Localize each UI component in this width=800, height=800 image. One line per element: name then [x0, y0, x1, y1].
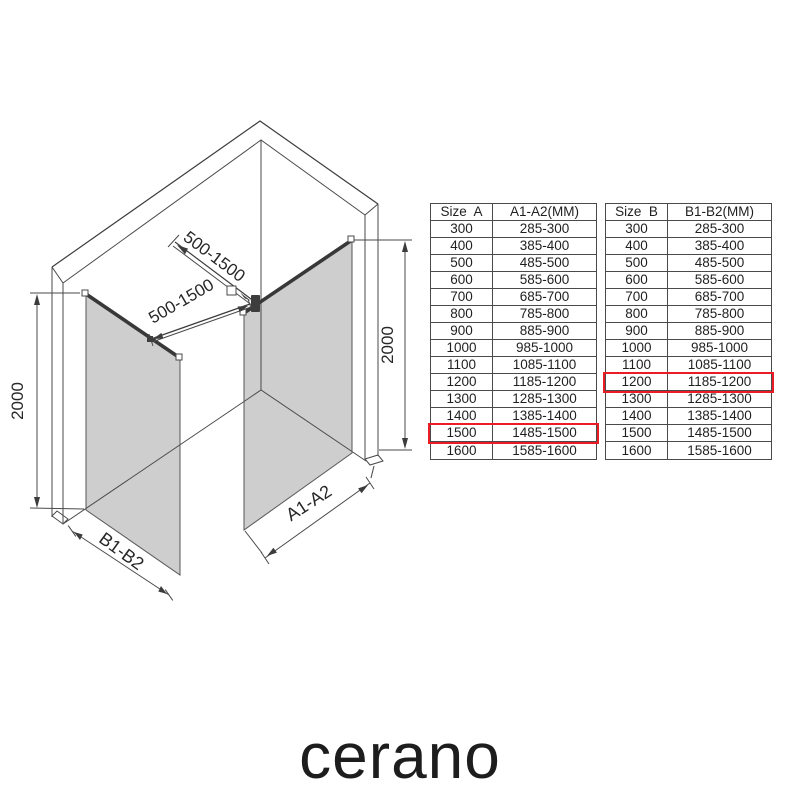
table-row: 700685-700: [606, 289, 771, 306]
table-cell: 985-1000: [493, 340, 596, 356]
dim-arrow: [34, 294, 40, 305]
size-table-b: Size BB1-B2(MM) 300285-300400385-4005004…: [605, 203, 772, 460]
table-cell: 485-500: [668, 255, 771, 271]
table-row: 800785-800: [606, 306, 771, 323]
table-row: 400385-400: [606, 238, 771, 255]
dim-ext-line: [371, 466, 374, 478]
table-cell: 800: [606, 306, 668, 322]
dim-arrow: [34, 497, 40, 508]
wall-right-end-cap: [365, 204, 378, 215]
table-cell: 600: [431, 272, 493, 288]
table-b-body: 300285-300400385-400500485-500600585-600…: [606, 221, 771, 459]
table-cell: 500: [431, 255, 493, 271]
table-cell: 1585-1600: [668, 442, 771, 459]
table-cell: 585-600: [493, 272, 596, 288]
table-row: 11001085-1100: [431, 357, 596, 374]
table-cell: 300: [606, 221, 668, 237]
table-row: 300285-300: [431, 221, 596, 238]
profile-cap-fitting: [82, 290, 88, 296]
table-cell: 1385-1400: [493, 408, 596, 424]
dim-arrow: [402, 438, 408, 449]
profile-cap-fitting: [348, 236, 354, 242]
header-cell: Size B: [606, 204, 668, 220]
table-cell: 1285-1300: [668, 391, 771, 407]
dim-end-tick: [261, 552, 269, 564]
table-cell: 1585-1600: [493, 442, 596, 459]
table-cell: 285-300: [668, 221, 771, 237]
table-row: 1000985-1000: [431, 340, 596, 357]
table-cell: 1000: [606, 340, 668, 356]
height-right-label: 2000: [378, 326, 397, 364]
table-cell: 1185-1200: [493, 374, 596, 390]
dim-arrow: [402, 241, 408, 252]
wall-right-bottom-cap: [365, 455, 383, 465]
table-cell: 1000: [431, 340, 493, 356]
table-row: 500485-500: [431, 255, 596, 272]
table-row: 700685-700: [431, 289, 596, 306]
dim-height-right: 2000: [354, 240, 412, 450]
table-cell: 1285-1300: [493, 391, 596, 407]
bar-connector-fitting: [227, 286, 236, 295]
table-row: 600585-600: [606, 272, 771, 289]
table-cell: 400: [606, 238, 668, 254]
table-row: 800785-800: [431, 306, 596, 323]
table-cell: 385-400: [493, 238, 596, 254]
table-b-header-row: Size BB1-B2(MM): [606, 204, 771, 221]
brand-logo: cerano: [299, 724, 501, 788]
dim-arrow: [240, 293, 251, 301]
dim-arrow: [153, 333, 163, 339]
table-cell: 1400: [606, 408, 668, 424]
dim-arrow: [358, 485, 368, 493]
table-cell: 1085-1100: [493, 357, 596, 373]
table-row: 1000985-1000: [606, 340, 771, 357]
page: 2000 2000 B1-B2: [0, 0, 800, 800]
table-cell: 685-700: [493, 289, 596, 305]
table-row: 15001485-1500: [431, 425, 596, 442]
table-cell: 300: [431, 221, 493, 237]
table-row: 500485-500: [606, 255, 771, 272]
table-cell: 1100: [606, 357, 668, 373]
table-cell: 1600: [431, 442, 493, 459]
table-row: 13001285-1300: [606, 391, 771, 408]
table-cell: 1600: [606, 442, 668, 459]
table-row: 900885-900: [431, 323, 596, 340]
header-cell: Size A: [431, 204, 493, 220]
table-cell: 1500: [431, 425, 493, 441]
dim-ext-line: [30, 508, 84, 509]
table-cell: 385-400: [668, 238, 771, 254]
table-cell: 700: [431, 289, 493, 305]
table-cell: 500: [606, 255, 668, 271]
table-row: 11001085-1100: [606, 357, 771, 374]
table-row: 400385-400: [431, 238, 596, 255]
profile-cap-fitting: [176, 354, 182, 360]
table-row: 12001185-1200: [606, 374, 771, 391]
table-row: 300285-300: [606, 221, 771, 238]
table-row: 13001285-1300: [431, 391, 596, 408]
table-cell: 1085-1100: [668, 357, 771, 373]
table-cell: 1200: [431, 374, 493, 390]
dim-height-left: 2000: [8, 293, 84, 509]
glass-panel-left: [86, 294, 180, 575]
corner-post-bracket: [251, 295, 260, 312]
height-left-label: 2000: [8, 382, 27, 420]
dim-end-tick: [366, 477, 374, 489]
table-cell: 800: [431, 306, 493, 322]
table-row: 600585-600: [431, 272, 596, 289]
table-row: 14001385-1400: [431, 408, 596, 425]
table-cell: 1385-1400: [668, 408, 771, 424]
table-cell: 1300: [606, 391, 668, 407]
glass-panel-right: [244, 240, 352, 530]
table-cell: 285-300: [493, 221, 596, 237]
table-cell: 585-600: [668, 272, 771, 288]
table-cell: 885-900: [493, 323, 596, 339]
table-cell: 985-1000: [668, 340, 771, 356]
dim-ext-line: [245, 531, 262, 553]
table-cell: 485-500: [493, 255, 596, 271]
wall-left-end-cap: [52, 267, 63, 283]
table-cell: 600: [606, 272, 668, 288]
table-cell: 700: [606, 289, 668, 305]
table-cell: 1185-1200: [668, 374, 771, 390]
dim-end-tick: [165, 590, 173, 601]
dim-arrow: [267, 548, 277, 556]
table-cell: 1200: [606, 374, 668, 390]
header-cell: A1-A2(MM): [493, 204, 596, 220]
table-row: 12001185-1200: [431, 374, 596, 391]
table-row: 14001385-1400: [606, 408, 771, 425]
table-cell: 1500: [606, 425, 668, 441]
table-a-header-row: Size AA1-A2(MM): [431, 204, 596, 221]
table-cell: 1100: [431, 357, 493, 373]
table-cell: 785-800: [493, 306, 596, 322]
table-cell: 400: [431, 238, 493, 254]
table-cell: 785-800: [668, 306, 771, 322]
table-cell: 900: [606, 323, 668, 339]
table-row: 16001585-1600: [431, 442, 596, 459]
size-table-a: Size AA1-A2(MM) 300285-300400385-4005004…: [430, 203, 597, 460]
table-a-body: 300285-300400385-400500485-500600585-600…: [431, 221, 596, 459]
table-cell: 1485-1500: [668, 425, 771, 441]
table-row: 15001485-1500: [606, 425, 771, 442]
table-cell: 1485-1500: [493, 425, 596, 441]
table-cell: 1400: [431, 408, 493, 424]
table-row: 900885-900: [606, 323, 771, 340]
dim-end-tick: [68, 526, 76, 537]
table-cell: 685-700: [668, 289, 771, 305]
table-cell: 885-900: [668, 323, 771, 339]
header-cell: B1-B2(MM): [668, 204, 771, 220]
table-cell: 900: [431, 323, 493, 339]
panel-clamp-fitting: [147, 336, 153, 342]
table-cell: 1300: [431, 391, 493, 407]
table-row: 16001585-1600: [606, 442, 771, 459]
